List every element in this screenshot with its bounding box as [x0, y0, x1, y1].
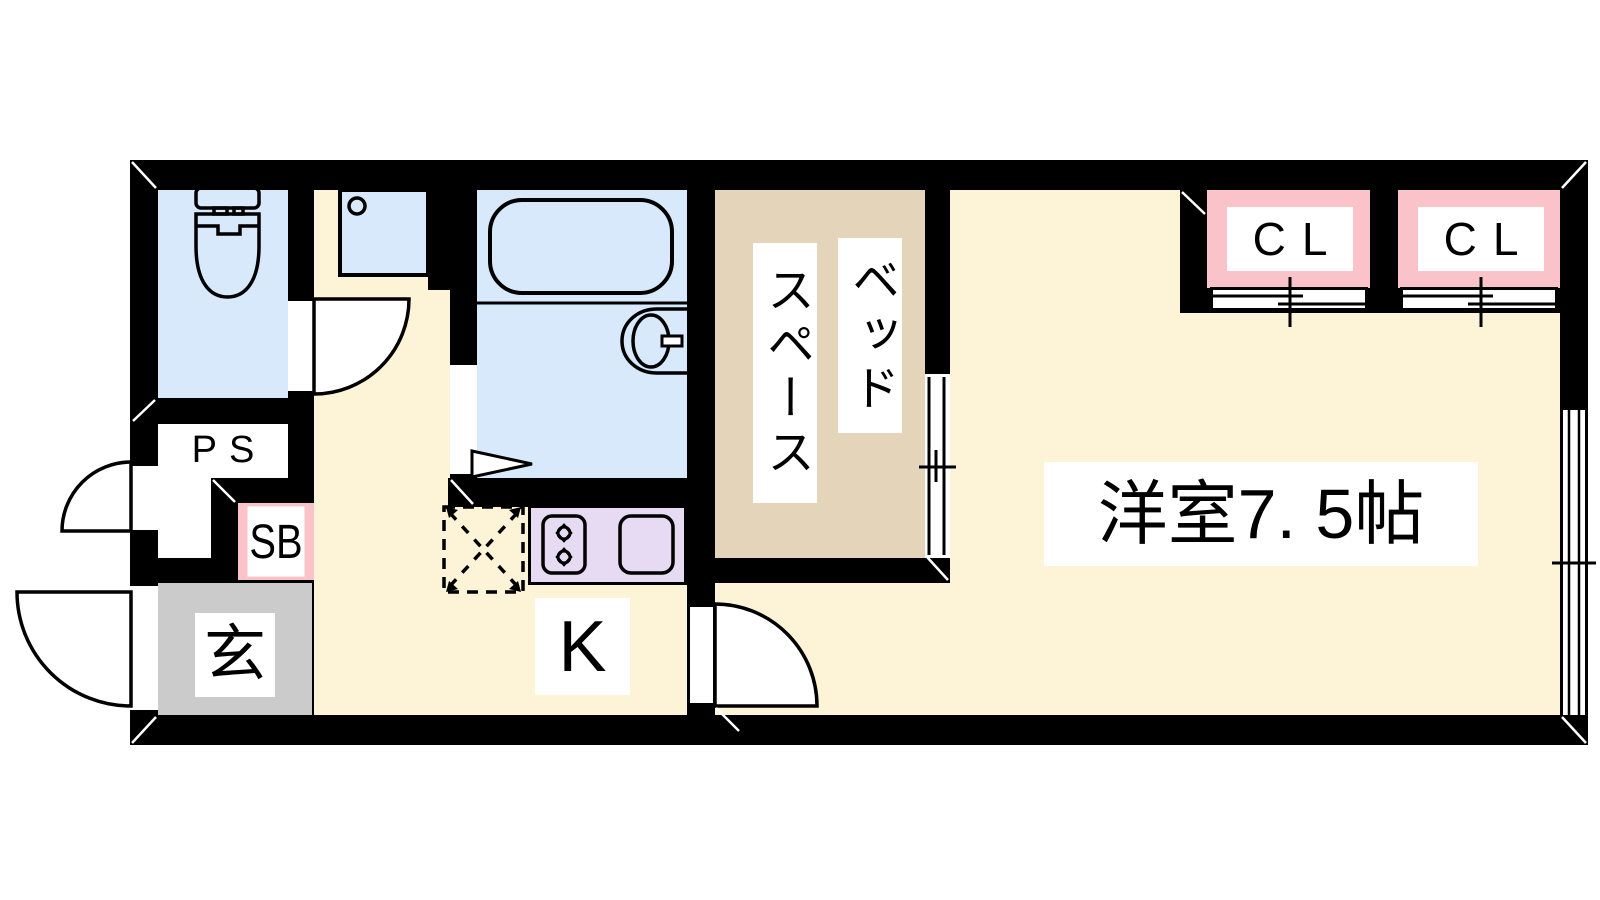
shoe-box-label: SB	[248, 506, 305, 576]
washbasin-side-wall	[428, 190, 477, 290]
kitchen-counter	[528, 505, 687, 585]
closet-right-label: CL	[1418, 207, 1544, 271]
pipe-space-text: PS	[192, 431, 267, 469]
toilet-door-opening	[288, 298, 314, 394]
closet-left-label: CL	[1227, 207, 1353, 271]
bed-space-sliding-door	[925, 374, 950, 558]
bed-space-text-2: スペース	[761, 265, 809, 481]
kitchen-door-opening	[690, 604, 713, 706]
main-room-text: 洋室7. 5帖	[1098, 479, 1425, 549]
entrance-door-swing	[17, 592, 131, 706]
closet-left-sliding-door	[1210, 287, 1368, 311]
bed-space-label-1: ベッド	[838, 238, 902, 433]
kitchen-floor-left	[314, 478, 448, 715]
utility-door-swing	[62, 462, 131, 531]
closet-left-text: CL	[1253, 216, 1344, 262]
bathroom-door-opening	[450, 362, 477, 477]
utility-door-opening	[130, 463, 158, 533]
window-right	[1560, 410, 1588, 715]
pipe-space-label: PS	[160, 428, 286, 472]
kitchen-text: K	[558, 611, 606, 683]
bed-space-label-2: スペース	[753, 243, 817, 503]
toilet-room-floor	[158, 190, 288, 398]
kitchen-label: K	[535, 598, 630, 695]
closet-right-text: CL	[1444, 216, 1535, 262]
floor-plan: SB PS 玄 K CL CL ベッド スペース 洋室7. 5帖	[0, 0, 1600, 900]
entrance-text: 玄	[204, 624, 266, 686]
main-room-floor-c	[715, 583, 950, 715]
main-room-floor-a	[950, 190, 1180, 715]
main-room-label: 洋室7. 5帖	[1044, 462, 1478, 566]
closet-right-sliding-door	[1400, 287, 1558, 311]
shoe-box-text: SB	[249, 517, 302, 565]
entrance-door-opening	[130, 583, 158, 713]
bathroom-floor	[477, 190, 687, 478]
entrance-label: 玄	[195, 613, 275, 697]
bed-space-text-1: ベッド	[846, 255, 894, 417]
